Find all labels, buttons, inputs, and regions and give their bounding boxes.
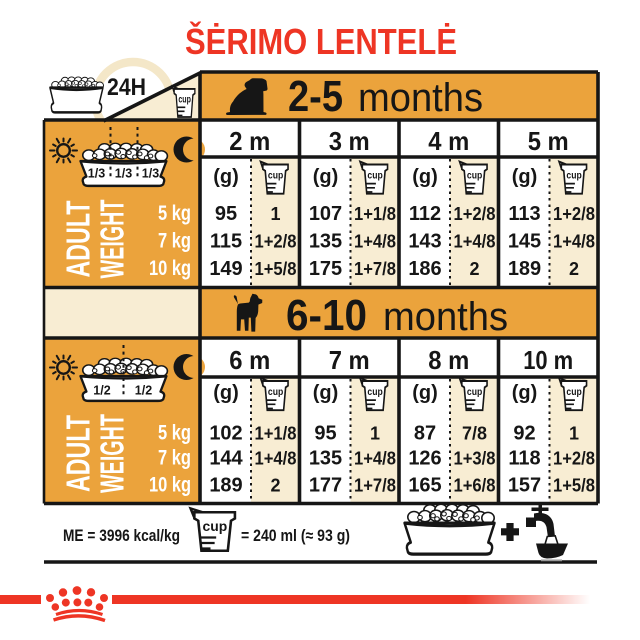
svg-text:135: 135 bbox=[309, 448, 342, 470]
svg-text:145: 145 bbox=[508, 231, 541, 253]
svg-text:(g): (g) bbox=[213, 382, 239, 404]
svg-text:2: 2 bbox=[469, 259, 479, 279]
svg-text:1: 1 bbox=[270, 204, 280, 224]
svg-text:135: 135 bbox=[309, 231, 342, 253]
svg-text:months: months bbox=[358, 76, 483, 120]
svg-text:112: 112 bbox=[409, 203, 441, 225]
svg-text:(g): (g) bbox=[412, 382, 438, 404]
svg-text:ME = 3996 kcal/kg: ME = 3996 kcal/kg bbox=[63, 527, 180, 545]
svg-text:126: 126 bbox=[408, 448, 441, 470]
svg-text:10 kg: 10 kg bbox=[149, 257, 191, 280]
svg-text:115: 115 bbox=[210, 231, 242, 253]
svg-text:24H: 24H bbox=[107, 74, 146, 101]
svg-text:189: 189 bbox=[508, 258, 541, 280]
svg-text:107: 107 bbox=[309, 203, 342, 225]
svg-text:3 m: 3 m bbox=[329, 126, 370, 156]
svg-text:95: 95 bbox=[314, 423, 336, 445]
svg-text:7 kg: 7 kg bbox=[158, 447, 191, 470]
svg-text:6 m: 6 m bbox=[229, 345, 270, 375]
svg-text:1+2/8: 1+2/8 bbox=[553, 204, 595, 224]
svg-text:189: 189 bbox=[209, 475, 242, 497]
svg-text:10 kg: 10 kg bbox=[149, 474, 191, 497]
svg-text:(g): (g) bbox=[213, 166, 239, 188]
svg-text:143: 143 bbox=[408, 231, 441, 253]
svg-text:157: 157 bbox=[508, 475, 541, 497]
svg-text:(g): (g) bbox=[313, 166, 339, 188]
svg-text:1+2/8: 1+2/8 bbox=[454, 204, 496, 224]
svg-text:1+7/8: 1+7/8 bbox=[354, 476, 396, 496]
svg-text:1/2: 1/2 bbox=[93, 384, 110, 398]
svg-text:1+4/8: 1+4/8 bbox=[255, 449, 297, 469]
svg-text:7/8: 7/8 bbox=[462, 424, 487, 444]
svg-text:2-5: 2-5 bbox=[288, 72, 343, 121]
svg-text:1/2: 1/2 bbox=[135, 384, 152, 398]
svg-text:1+1/8: 1+1/8 bbox=[354, 204, 396, 224]
svg-text:1+6/8: 1+6/8 bbox=[454, 476, 496, 496]
svg-text:1+1/8: 1+1/8 bbox=[255, 424, 297, 444]
svg-text:144: 144 bbox=[209, 448, 243, 470]
svg-text:87: 87 bbox=[414, 423, 436, 445]
svg-text:1/3: 1/3 bbox=[142, 167, 159, 181]
svg-text:1/3: 1/3 bbox=[88, 167, 105, 181]
svg-text:months: months bbox=[383, 295, 508, 339]
svg-text:5 m: 5 m bbox=[528, 126, 569, 156]
svg-text:ADULT: ADULT bbox=[60, 201, 97, 278]
svg-text:149: 149 bbox=[209, 258, 242, 280]
svg-text:2: 2 bbox=[569, 259, 579, 279]
svg-text:175: 175 bbox=[309, 258, 342, 280]
svg-text:1+4/8: 1+4/8 bbox=[454, 232, 496, 252]
svg-text:177: 177 bbox=[309, 475, 342, 497]
svg-text:WEIGHT: WEIGHT bbox=[94, 200, 131, 279]
svg-text:(g): (g) bbox=[512, 166, 538, 188]
svg-text:ADULT: ADULT bbox=[60, 415, 97, 492]
svg-text:10 m: 10 m bbox=[523, 345, 573, 375]
svg-text:2: 2 bbox=[270, 476, 280, 496]
svg-text:7 m: 7 m bbox=[329, 345, 370, 375]
svg-text:92: 92 bbox=[513, 423, 535, 445]
svg-text:118: 118 bbox=[508, 448, 540, 470]
svg-text:= 240 ml (≈ 93 g): = 240 ml (≈ 93 g) bbox=[241, 527, 350, 545]
svg-text:1+2/8: 1+2/8 bbox=[255, 232, 297, 252]
svg-text:1+5/8: 1+5/8 bbox=[255, 259, 297, 279]
svg-text:1+7/8: 1+7/8 bbox=[354, 259, 396, 279]
svg-text:(g): (g) bbox=[412, 166, 438, 188]
svg-text:7 kg: 7 kg bbox=[158, 230, 191, 253]
svg-text:1+3/8: 1+3/8 bbox=[454, 449, 496, 469]
svg-text:113: 113 bbox=[508, 203, 540, 225]
svg-text:1+4/8: 1+4/8 bbox=[354, 232, 396, 252]
svg-text:1/3: 1/3 bbox=[115, 167, 132, 181]
svg-text:(g): (g) bbox=[313, 382, 339, 404]
svg-text:95: 95 bbox=[215, 203, 237, 225]
svg-text:(g): (g) bbox=[512, 382, 538, 404]
svg-text:102: 102 bbox=[209, 423, 242, 445]
svg-text:5 kg: 5 kg bbox=[158, 422, 191, 445]
svg-text:165: 165 bbox=[408, 475, 441, 497]
svg-text:4 m: 4 m bbox=[428, 126, 469, 156]
svg-text:6-10: 6-10 bbox=[286, 291, 367, 340]
svg-text:2 m: 2 m bbox=[229, 126, 270, 156]
svg-text:1+4/8: 1+4/8 bbox=[354, 449, 396, 469]
svg-text:ŠĖRIMO LENTELĖ: ŠĖRIMO LENTELĖ bbox=[185, 20, 457, 62]
svg-text:1: 1 bbox=[370, 424, 380, 444]
svg-text:1+5/8: 1+5/8 bbox=[553, 476, 595, 496]
svg-text:8 m: 8 m bbox=[428, 345, 469, 375]
svg-text:5 kg: 5 kg bbox=[158, 202, 191, 225]
svg-text:1: 1 bbox=[569, 424, 579, 444]
svg-text:1+4/8: 1+4/8 bbox=[553, 232, 595, 252]
svg-text:WEIGHT: WEIGHT bbox=[94, 414, 131, 493]
svg-text:186: 186 bbox=[408, 258, 441, 280]
svg-text:1+2/8: 1+2/8 bbox=[553, 449, 595, 469]
